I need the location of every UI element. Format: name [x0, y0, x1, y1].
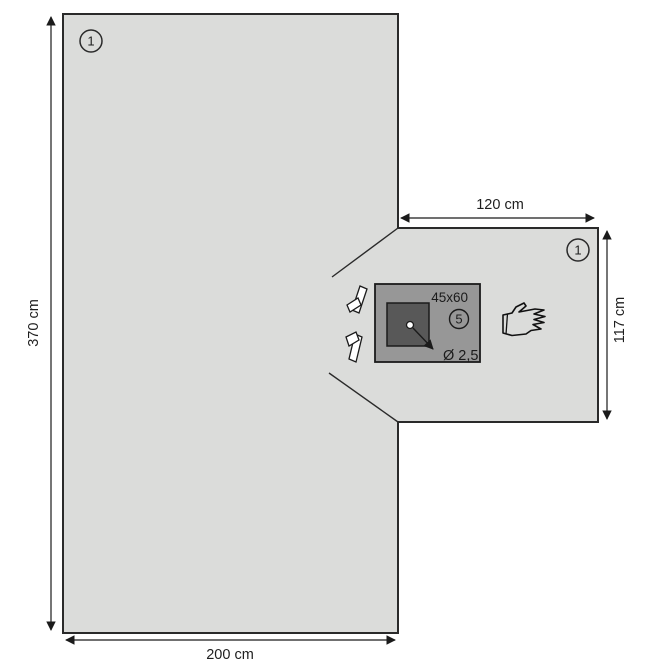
sheet-width-dimension: 200 cm	[66, 640, 395, 663]
panel-height-dimension: 117 cm	[607, 231, 628, 419]
hole-diameter-label: Ø 2,5	[443, 348, 478, 364]
drape-diagram: 1 1 45x60 5 Ø 2,5 370 cm 2	[0, 0, 651, 667]
panel-marker-label: 1	[574, 243, 581, 258]
sheet-height-label: 370 cm	[26, 299, 42, 347]
adhesive-hole	[407, 322, 414, 329]
film-marker-label: 5	[455, 312, 462, 327]
panel-width-dimension: 120 cm	[401, 197, 594, 218]
film-size-label: 45x60	[431, 290, 468, 305]
sheet-width-label: 200 cm	[206, 647, 254, 663]
sheet-height-dimension: 370 cm	[26, 17, 51, 630]
sheet-marker-label: 1	[87, 34, 94, 49]
incise-film: 45x60 5 Ø 2,5	[375, 284, 480, 364]
panel-width-label: 120 cm	[476, 197, 524, 213]
panel-height-label: 117 cm	[612, 297, 628, 343]
drape-diagram-page: 1 1 45x60 5 Ø 2,5 370 cm 2	[0, 0, 651, 667]
